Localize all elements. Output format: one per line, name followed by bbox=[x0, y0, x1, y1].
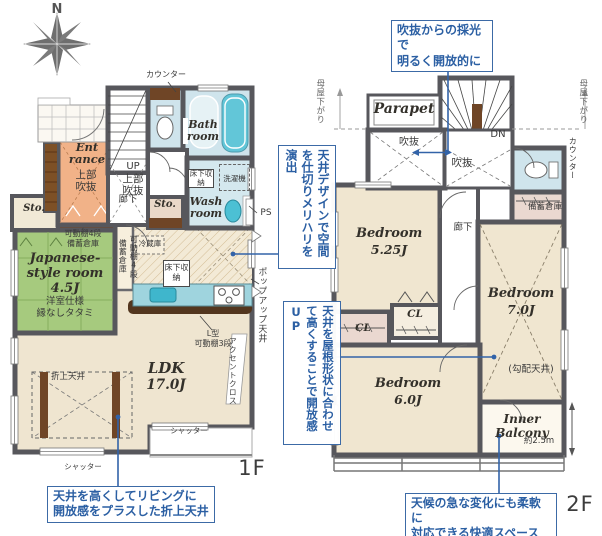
shutter-left-label: シャッター bbox=[60, 463, 106, 472]
popup-ceiling-label: ポップアップ天井 bbox=[256, 267, 266, 351]
toilet-2f bbox=[512, 148, 564, 192]
floor2-label: 2F bbox=[558, 492, 602, 516]
bedroom-525-label: Bedroom 5.25J bbox=[356, 226, 422, 257]
callout-roof-shape: 天井を屋根形状に合わせて高くすることで開放感UP bbox=[283, 301, 341, 445]
japanese-room-line3: 4.5J bbox=[16, 281, 114, 296]
callout-skylight-line2: 明るく開放的に bbox=[397, 54, 487, 69]
callout-coffered: 天井を高くしてリビングに 開放感をプラスした折上天井 bbox=[47, 486, 215, 523]
roof-slope-right-label: 母屋下がり bbox=[577, 79, 587, 137]
balcony-depth-label: 約2.5m bbox=[518, 437, 560, 447]
storage-mid-label: Sto. bbox=[150, 199, 180, 211]
hallway-label-2f: 廊下 bbox=[448, 223, 478, 234]
callout-weather-line1: 天候の急な変化にも柔軟に bbox=[411, 496, 551, 526]
void-left-label: 吹抜 bbox=[393, 137, 425, 149]
wash-room-label: Wash room bbox=[185, 196, 227, 220]
accent-cloth-label: アクセントクロス bbox=[228, 337, 237, 405]
japanese-room-line1: Japanese- bbox=[16, 251, 114, 266]
counter-label-2f: カウンター bbox=[568, 137, 577, 185]
compass-rose bbox=[23, 12, 91, 76]
compass-north-label: N bbox=[49, 3, 65, 18]
callout-skylight-line1: 吹抜からの採光で bbox=[397, 23, 487, 54]
bedroom-60-line1: Bedroom bbox=[372, 376, 444, 392]
counter-label-1f: カウンター bbox=[144, 70, 188, 79]
coffered-ceiling-label: 折上天井 bbox=[46, 373, 90, 383]
underfloor-storage-wash: 床下収納 bbox=[188, 169, 214, 188]
balcony-rail bbox=[334, 455, 564, 471]
washing-machine-box: 洗濯機 bbox=[219, 164, 250, 191]
pipe-space-label: PS bbox=[255, 208, 277, 218]
callout-skylight: 吹抜からの採光で 明るく開放的に bbox=[391, 20, 493, 72]
shutter-right-label: シャッター bbox=[168, 427, 210, 436]
bath-room-label: Bath room bbox=[183, 119, 223, 143]
void-right-label: 吹抜 bbox=[445, 157, 479, 169]
bedroom-70-label: Bedroom 7.0J bbox=[486, 286, 556, 317]
corridor-1f bbox=[148, 150, 187, 197]
japanese-closet-line1: 可動棚4段 bbox=[56, 229, 110, 239]
ldk-line1: LDK bbox=[138, 360, 194, 377]
porch bbox=[38, 98, 108, 142]
ldk-label: LDK 17.0J bbox=[138, 360, 194, 393]
callout-ceiling-design: 天井デザインで空間を仕切りメリハリを演出 bbox=[278, 145, 336, 269]
sink bbox=[150, 288, 176, 302]
down-label: DN bbox=[484, 129, 512, 141]
japanese-closet-line2: 備蓄倉庫 bbox=[56, 239, 110, 249]
bedroom-70-line1: Bedroom bbox=[486, 286, 556, 302]
ldk-line2: 17.0J bbox=[138, 377, 194, 393]
bedroom-525-line1: Bedroom bbox=[356, 226, 422, 242]
entrance-label: Ent rance bbox=[64, 141, 110, 165]
fridge-label: 冷蔵庫 bbox=[137, 240, 163, 249]
pantry-label: 備蓄倉庫 bbox=[118, 239, 127, 279]
balcony-dimension-arrow bbox=[569, 402, 575, 456]
bedroom-60-line2: 6.0J bbox=[372, 392, 444, 407]
japanese-closet-label: 可動棚4段 備蓄倉庫 bbox=[56, 229, 110, 248]
japanese-room-line4: 洋室仕様 bbox=[16, 296, 114, 308]
stove bbox=[214, 286, 244, 305]
closet2-label: CL bbox=[400, 308, 430, 320]
sloped-ceiling-label: (勾配天井) bbox=[496, 365, 566, 376]
callout-weather: 天候の急な変化にも柔軟に 対応できる快適スペース bbox=[405, 493, 557, 536]
roof-slope-left-label: 母屋下がり bbox=[314, 79, 324, 137]
bedroom-60-label: Bedroom 6.0J bbox=[372, 376, 444, 407]
callout-coffered-line2: 開放感をプラスした折上天井 bbox=[53, 504, 209, 519]
japanese-room-line2: style room bbox=[16, 266, 114, 281]
callout-weather-line2: 対応できる快適スペース bbox=[411, 526, 551, 536]
up-label: UP bbox=[120, 161, 146, 173]
hallway-label-1f: 廊下 bbox=[114, 195, 142, 206]
japanese-room-line5: 縁なしタタミ bbox=[16, 308, 114, 320]
bedroom-525-line2: 5.25J bbox=[356, 242, 422, 257]
callout-coffered-line1: 天井を高くしてリビングに bbox=[53, 489, 209, 504]
underfloor-storage-kitchen: 床下収納 bbox=[163, 260, 190, 287]
bedroom-70-line2: 7.0J bbox=[486, 302, 556, 317]
pipe-space-shaft bbox=[246, 199, 253, 225]
japanese-room-label: Japanese- style room 4.5J 洋室仕様 縁なしタタミ bbox=[16, 251, 114, 320]
closet1-label: CL bbox=[348, 322, 378, 334]
storage-2f-label: 備蓄倉庫 bbox=[522, 203, 568, 213]
toilet-1f bbox=[148, 88, 183, 150]
floor-plan-page: N カウンター Bath room Ent rance 上部吹抜 UP 上部吹抜… bbox=[0, 0, 602, 536]
entrance-void-label: 上部吹抜 bbox=[71, 169, 101, 193]
parapet-label: Parapet bbox=[368, 101, 440, 117]
storage-left-label: Sto. bbox=[20, 203, 48, 215]
floor1-label: 1F bbox=[230, 456, 274, 480]
